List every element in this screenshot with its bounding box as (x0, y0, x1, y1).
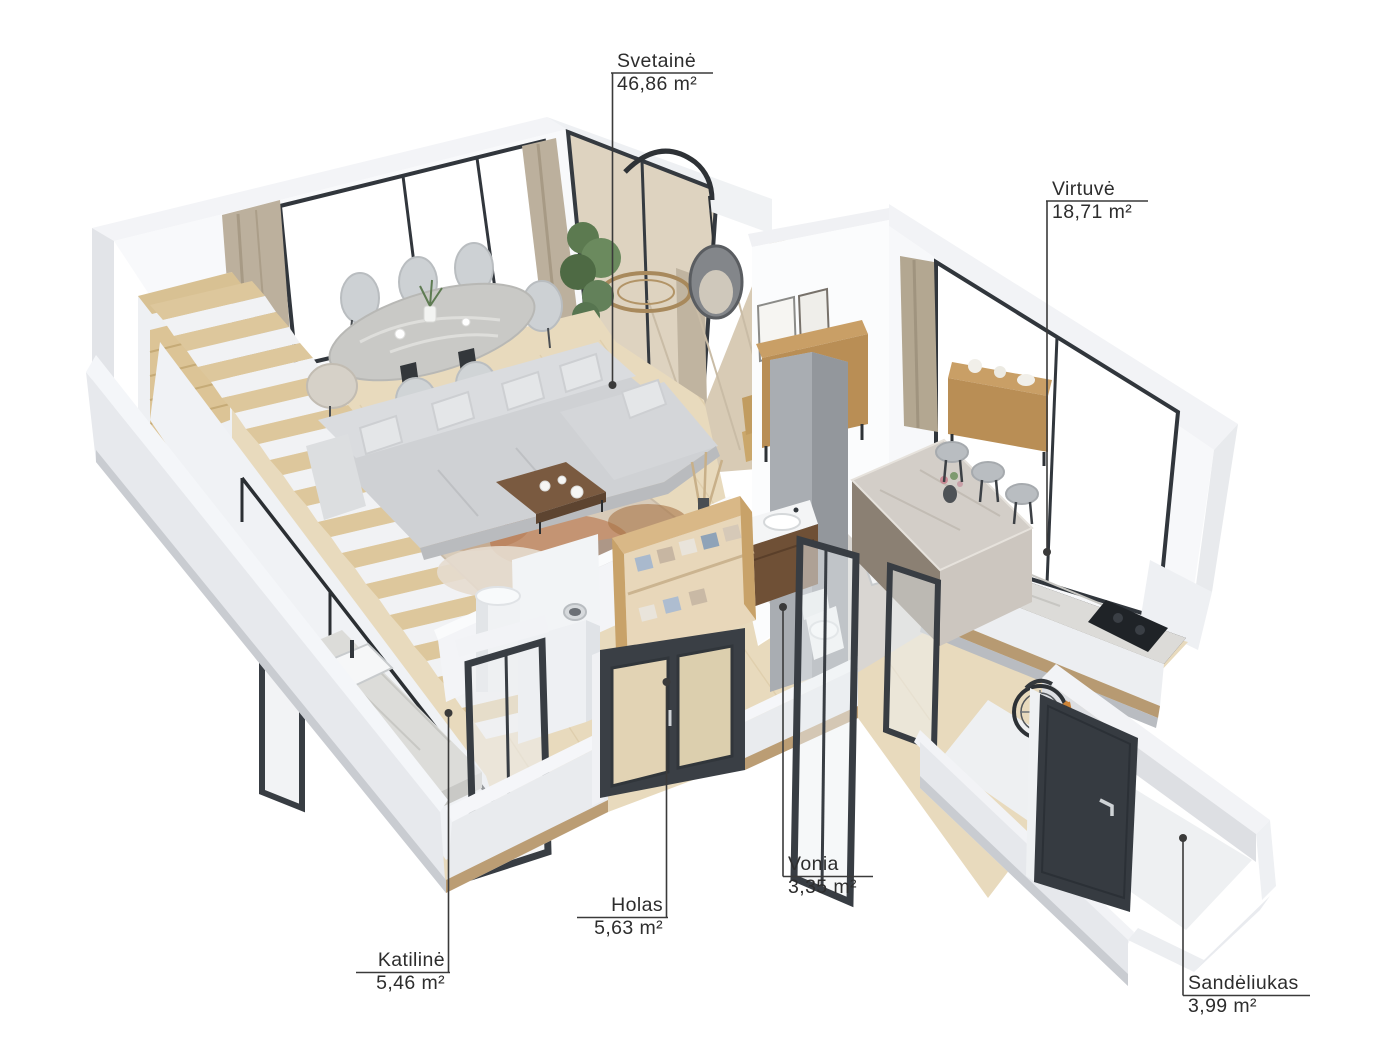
curtain-kitchen (900, 256, 938, 432)
room-label-vonia: Vonia 3,35 m² (788, 853, 857, 899)
room-name: Sandėliukas (1188, 972, 1299, 995)
room-name: Vonia (788, 853, 857, 876)
floorplan-3d-render (0, 0, 1400, 1050)
entrance-door (592, 628, 745, 806)
room-label-sandeliukas: Sandėliukas 3,99 m² (1188, 972, 1299, 1018)
room-label-svetaine: Svetainė 46,86 m² (617, 50, 697, 96)
floor-plan-page: Svetainė 46,86 m² Virtuvė 18,71 m² Vonia… (0, 0, 1400, 1050)
room-area: 18,71 m² (1052, 201, 1132, 224)
room-label-katiline: Katilinė 5,46 m² (305, 949, 445, 995)
room-name: Svetainė (617, 50, 697, 73)
room-label-holas: Holas 5,63 m² (523, 894, 663, 940)
room-name: Virtuvė (1052, 178, 1132, 201)
room-area: 5,46 m² (305, 972, 445, 995)
room-area: 3,35 m² (788, 876, 857, 899)
room-area: 46,86 m² (617, 73, 697, 96)
island-vase (943, 485, 957, 503)
room-label-virtuve: Virtuvė 18,71 m² (1052, 178, 1132, 224)
room-name: Holas (523, 894, 663, 917)
room-area: 5,63 m² (523, 917, 663, 940)
room-name: Katilinė (305, 949, 445, 972)
room-area: 3,99 m² (1188, 995, 1299, 1018)
